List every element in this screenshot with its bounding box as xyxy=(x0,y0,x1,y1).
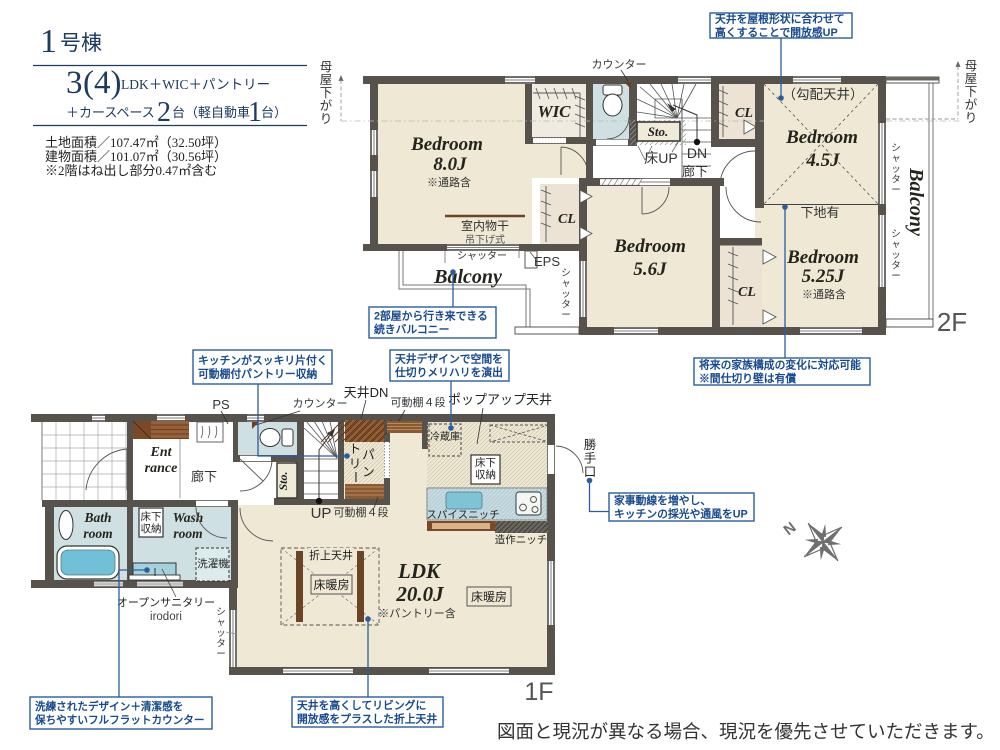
svg-text:台）: 台） xyxy=(261,105,287,120)
svg-text:吊下げ式: 吊下げ式 xyxy=(465,233,505,246)
svg-text:カウンター: カウンター xyxy=(592,58,647,71)
svg-text:ー: ー xyxy=(348,471,362,484)
svg-text:が: が xyxy=(320,98,333,113)
svg-text:Wash: Wash xyxy=(173,510,204,525)
svg-text:可動棚付パントリー収納: 可動棚付パントリー収納 xyxy=(198,367,318,381)
svg-text:廊下: 廊下 xyxy=(191,469,217,484)
svg-text:ン: ン xyxy=(362,465,375,479)
svg-text:下: 下 xyxy=(320,86,333,100)
svg-text:ャ: ャ xyxy=(891,240,901,251)
svg-text:※通路含: ※通路含 xyxy=(427,175,471,189)
svg-text:ャ: ャ xyxy=(216,618,226,629)
svg-text:ッ: ッ xyxy=(891,250,901,261)
svg-text:り: り xyxy=(965,111,978,125)
svg-text:廊下: 廊下 xyxy=(682,164,708,179)
svg-text:スパイスニッチ: スパイスニッチ xyxy=(426,509,499,521)
svg-text:ト: ト xyxy=(349,442,362,456)
svg-text:＋カースペース: ＋カースペース xyxy=(66,105,155,120)
svg-text:保ちやすいフルフラットカウンター: 保ちやすいフルフラットカウンター xyxy=(34,713,205,726)
svg-text:洗濯機: 洗濯機 xyxy=(197,557,229,570)
svg-text:room: room xyxy=(173,526,202,541)
svg-text:タ: タ xyxy=(561,300,571,311)
svg-text:PS: PS xyxy=(212,397,230,412)
svg-text:ー: ー xyxy=(561,310,571,321)
svg-text:ッ: ッ xyxy=(216,628,226,639)
svg-text:床UP: 床UP xyxy=(644,150,677,166)
svg-text:キッチンがスッキリ片付く: キッチンがスッキリ片付く xyxy=(198,353,328,367)
svg-text:ャ: ャ xyxy=(561,279,571,290)
svg-text:CL: CL xyxy=(558,212,576,227)
svg-text:床下: 床下 xyxy=(141,510,162,523)
svg-text:ポップアップ天井: ポップアップ天井 xyxy=(448,392,552,407)
svg-text:り: り xyxy=(320,112,333,126)
svg-text:母: 母 xyxy=(965,59,978,73)
svg-text:口: 口 xyxy=(584,465,597,479)
svg-text:が: が xyxy=(965,97,978,112)
svg-text:仕切りメリハリを演出: 仕切りメリハリを演出 xyxy=(394,365,503,379)
svg-text:タ: タ xyxy=(891,261,901,272)
svg-text:2部屋から行き来できる: 2部屋から行き来できる xyxy=(374,308,488,322)
svg-text:1F: 1F xyxy=(524,678,553,706)
svg-text:5.25J: 5.25J xyxy=(802,266,845,287)
svg-text:ー: ー xyxy=(216,649,226,660)
svg-text:リ: リ xyxy=(349,457,362,471)
svg-text:建物面積／101.07㎡（30.56坪）: 建物面積／101.07㎡（30.56坪） xyxy=(45,149,227,164)
svg-text:ッ: ッ xyxy=(561,289,571,300)
svg-text:屋: 屋 xyxy=(320,73,333,87)
svg-text:シ: シ xyxy=(891,143,901,154)
svg-text:将来の家族構成の変化に対応可能: 将来の家族構成の変化に対応可能 xyxy=(699,357,861,371)
svg-text:※通路含: ※通路含 xyxy=(802,287,846,301)
svg-text:Balcony: Balcony xyxy=(433,266,502,288)
svg-text:ャ: ャ xyxy=(891,154,901,165)
svg-text:続きバルコニー: 続きバルコニー xyxy=(374,322,449,336)
svg-text:母: 母 xyxy=(320,60,333,74)
svg-text:ッ: ッ xyxy=(891,164,901,175)
svg-text:1: 1 xyxy=(40,23,57,60)
svg-text:可動棚４段: 可動棚４段 xyxy=(391,395,446,409)
svg-text:シ: シ xyxy=(561,268,571,279)
svg-text:シ: シ xyxy=(891,229,901,240)
svg-text:（勾配天井）: （勾配天井） xyxy=(783,87,864,102)
svg-text:irodori: irodori xyxy=(150,611,182,623)
svg-text:ー: ー xyxy=(891,271,901,282)
svg-text:家事動線を増やし、: 家事動線を増やし、 xyxy=(614,493,711,507)
svg-text:4.5J: 4.5J xyxy=(805,150,840,171)
svg-text:LDK: LDK xyxy=(397,559,442,583)
svg-text:Bedroom: Bedroom xyxy=(613,236,686,257)
svg-text:2: 2 xyxy=(157,97,171,128)
svg-text:Bedroom: Bedroom xyxy=(786,247,859,268)
svg-text:土地面積／107.47㎡（32.50坪）: 土地面積／107.47㎡（32.50坪） xyxy=(45,135,227,150)
svg-text:タ: タ xyxy=(216,639,226,650)
svg-text:オープンサニタリー: オープンサニタリー xyxy=(117,596,215,609)
svg-text:Bedroom: Bedroom xyxy=(410,134,483,155)
svg-text:号棟: 号棟 xyxy=(60,31,102,55)
svg-text:カウンター: カウンター xyxy=(293,397,348,410)
svg-text:室内物干: 室内物干 xyxy=(461,218,509,233)
svg-text:20.0J: 20.0J xyxy=(395,582,445,606)
svg-text:収納: 収納 xyxy=(141,522,162,535)
svg-text:床暖房: 床暖房 xyxy=(471,589,507,604)
svg-text:WIC: WIC xyxy=(537,102,571,121)
svg-text:シ: シ xyxy=(216,607,226,618)
svg-text:床下: 床下 xyxy=(475,456,496,469)
svg-text:天井DN: 天井DN xyxy=(344,385,389,400)
svg-text:5.6J: 5.6J xyxy=(633,259,667,280)
svg-text:UP: UP xyxy=(311,505,332,522)
svg-text:可動棚４段: 可動棚４段 xyxy=(334,505,389,519)
svg-text:※2階はね出し部分0.47㎡含む: ※2階はね出し部分0.47㎡含む xyxy=(45,163,217,178)
svg-text:※パントリー含: ※パントリー含 xyxy=(378,606,456,620)
svg-text:1: 1 xyxy=(248,97,262,128)
svg-text:Ent: Ent xyxy=(149,445,172,460)
svg-text:8.0J: 8.0J xyxy=(433,154,467,175)
svg-text:天井デザインで空間を: 天井デザインで空間を xyxy=(395,351,503,365)
svg-text:開放感をプラスした折上天井: 開放感をプラスした折上天井 xyxy=(297,712,437,726)
svg-text:床暖房: 床暖房 xyxy=(313,577,349,592)
svg-text:造作ニッチ: 造作ニッチ xyxy=(495,533,548,546)
svg-text:Sto.: Sto. xyxy=(276,471,290,490)
svg-text:屋: 屋 xyxy=(965,72,978,86)
svg-text:3: 3 xyxy=(66,65,83,101)
svg-text:収納: 収納 xyxy=(475,468,496,481)
svg-text:room: room xyxy=(83,526,112,541)
svg-text:Bedroom: Bedroom xyxy=(785,127,858,148)
svg-text:天井を高くしてリビングに: 天井を高くしてリビングに xyxy=(297,698,426,712)
svg-text:折上天井: 折上天井 xyxy=(309,548,353,562)
svg-text:タ: タ xyxy=(891,175,901,186)
svg-text:図面と現況が異なる場合、現況を優先させていただきます。: 図面と現況が異なる場合、現況を優先させていただきます。 xyxy=(497,721,995,742)
svg-text:キッチンの採光や通風をUP: キッチンの採光や通風をUP xyxy=(614,507,748,521)
svg-text:(4): (4) xyxy=(83,65,121,101)
svg-text:冷蔵庫: 冷蔵庫 xyxy=(430,430,460,443)
svg-text:天井を屋根形状に合わせて: 天井を屋根形状に合わせて xyxy=(715,11,845,25)
svg-text:下: 下 xyxy=(965,85,978,99)
svg-text:rance: rance xyxy=(145,461,178,476)
svg-text:LDK＋WIC＋パントリー: LDK＋WIC＋パントリー xyxy=(121,77,270,92)
svg-text:シャッター: シャッター xyxy=(457,250,507,262)
svg-text:台（軽自動車: 台（軽自動車 xyxy=(172,105,250,120)
svg-text:CL: CL xyxy=(738,285,756,300)
svg-text:パ: パ xyxy=(362,448,375,462)
svg-text:下地有: 下地有 xyxy=(800,205,839,220)
svg-text:高くすることで開放感UP: 高くすることで開放感UP xyxy=(715,25,838,39)
svg-text:Balcony: Balcony xyxy=(905,167,927,236)
svg-text:Bath: Bath xyxy=(83,510,111,525)
svg-text:ー: ー xyxy=(891,185,901,196)
svg-text:勝: 勝 xyxy=(584,437,597,452)
svg-text:CL: CL xyxy=(735,106,753,121)
svg-text:※間仕切り壁は有償: ※間仕切り壁は有償 xyxy=(699,371,796,385)
svg-text:洗練されたデザイン＋清潔感を: 洗練されたデザイン＋清潔感を xyxy=(34,700,183,713)
svg-text:DN: DN xyxy=(687,145,707,161)
svg-text:Sto.: Sto. xyxy=(648,124,669,139)
svg-text:2F: 2F xyxy=(937,307,967,337)
svg-text:手: 手 xyxy=(584,452,597,466)
